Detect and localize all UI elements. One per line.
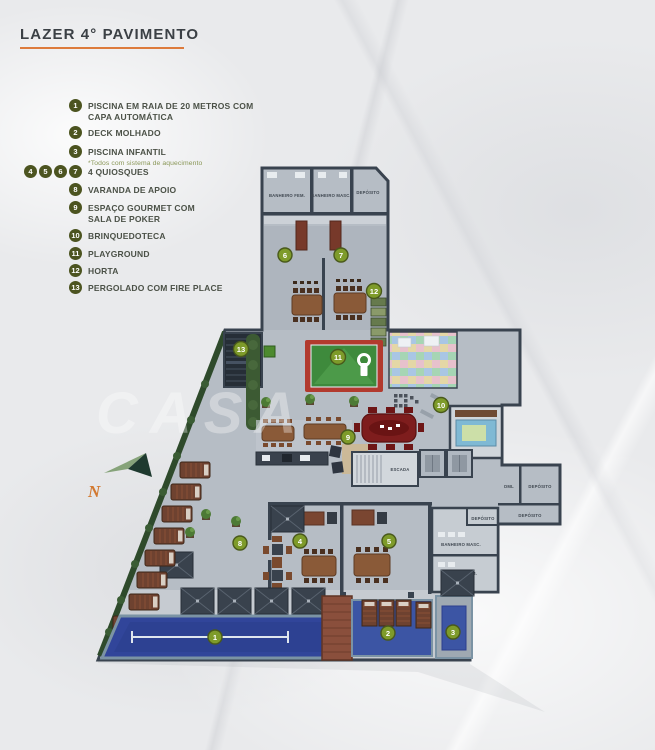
svg-text:12: 12 xyxy=(370,287,378,296)
room-label: DEPÓSITO xyxy=(528,484,552,489)
armchair-icon xyxy=(331,461,343,473)
plant-icon xyxy=(185,527,195,538)
stairs-room: ESCADA xyxy=(352,452,418,486)
room-label: DML xyxy=(504,484,514,489)
plant-icon xyxy=(201,509,211,520)
svg-text:10: 10 xyxy=(437,401,445,410)
page: LAZER 4° PAVIMENTO 1 PISCINA EM RAIA DE … xyxy=(0,0,655,750)
lounger-icon xyxy=(145,550,175,566)
lounger-icon xyxy=(180,462,210,478)
plan-marker-2: 2 xyxy=(381,626,395,640)
plant-icon xyxy=(231,516,241,527)
lounger-icon xyxy=(154,528,184,544)
play-structure-icon xyxy=(424,336,439,346)
planter-icon xyxy=(264,346,275,357)
umbrella-icon xyxy=(255,588,288,614)
lounger-icon xyxy=(162,506,192,522)
grill-icon xyxy=(304,512,324,525)
lounger-icon xyxy=(416,602,431,628)
play-structure-icon xyxy=(398,338,411,347)
room-label: BANHEIRO FEM. xyxy=(269,193,305,198)
umbrella-icon xyxy=(271,506,304,532)
compass-north-label: N xyxy=(87,482,101,501)
svg-text:6: 6 xyxy=(283,251,287,260)
lounger-icon xyxy=(379,600,394,626)
playground xyxy=(305,340,383,392)
plan-marker-5: 5 xyxy=(382,534,396,548)
svg-text:11: 11 xyxy=(334,353,343,362)
lounger-icon xyxy=(171,484,201,500)
floor-plan: BANHEIRO FEM. BANHEIRO MASC. DEPÓSITO xyxy=(0,0,655,750)
horta-planters xyxy=(371,298,386,346)
room-label: BANHEIRO MASC. xyxy=(311,193,351,198)
plan-marker-12: 12 xyxy=(367,284,382,299)
armchair-icon xyxy=(329,445,342,458)
brick-path xyxy=(322,596,352,660)
elevators xyxy=(420,450,472,477)
room-label: DEPÓSITO xyxy=(518,513,542,518)
plan-marker-11: 11 xyxy=(331,350,346,365)
umbrella-icon xyxy=(181,588,214,614)
plan-marker-10: 10 xyxy=(434,398,449,413)
grill-icon xyxy=(296,221,307,250)
grill-icon xyxy=(352,510,374,525)
umbrella-icon xyxy=(441,570,474,596)
umbrella-icon xyxy=(292,588,325,614)
lounger-icon xyxy=(129,594,159,610)
plan-marker-9: 9 xyxy=(341,430,355,444)
lounger-icon xyxy=(396,600,411,626)
plan-marker-8: 8 xyxy=(233,536,247,550)
compass: N xyxy=(87,453,152,501)
watermark: CASA xyxy=(96,381,308,446)
umbrella-icon xyxy=(218,588,251,614)
svg-text:8: 8 xyxy=(238,539,242,548)
svg-text:13: 13 xyxy=(237,345,245,354)
plan-marker-4: 4 xyxy=(293,534,307,548)
svg-text:7: 7 xyxy=(339,251,343,260)
lounger-icon xyxy=(137,572,167,588)
plan-marker-3: 3 xyxy=(446,625,460,639)
plan-shadow xyxy=(98,660,545,712)
room-label: DEPÓSITO xyxy=(356,190,380,195)
plant-icon xyxy=(349,396,359,407)
grill-icon xyxy=(330,221,341,250)
room-label: DEPÓSITO xyxy=(471,516,495,521)
svg-text:3: 3 xyxy=(451,628,455,637)
svg-text:9: 9 xyxy=(346,433,350,442)
svg-text:2: 2 xyxy=(386,629,390,638)
lounger-icon xyxy=(362,600,377,626)
plan-marker-7: 7 xyxy=(334,248,348,262)
room-label: ESCADA xyxy=(391,467,410,472)
bench-icon xyxy=(455,410,497,417)
plan-marker-6: 6 xyxy=(278,248,292,262)
plan-marker-13: 13 xyxy=(234,342,249,357)
plan-marker-1: 1 xyxy=(208,630,222,644)
kitchen-counter xyxy=(256,452,328,465)
room-label: BANHEIRO MASC. xyxy=(441,542,481,547)
